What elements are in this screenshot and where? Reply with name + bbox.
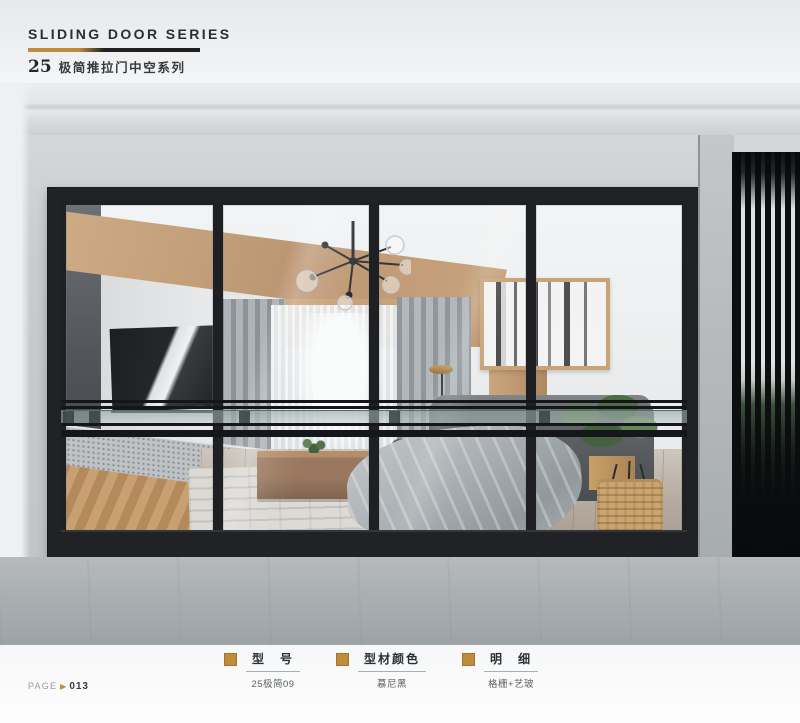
ceiling-molding (0, 83, 800, 135)
spec-details: 明 细 格栅+艺玻 (462, 650, 538, 690)
spec-model-value: 25极简09 (251, 676, 294, 690)
series-title-cn-row: 25 极简推拉门中空系列 (28, 57, 232, 77)
page-header: SLIDING DOOR SERIES 25 极简推拉门中空系列 (28, 26, 232, 77)
door-panel-4 (531, 201, 688, 549)
right-wall-strip (698, 135, 734, 559)
page-label: PAGE (28, 681, 57, 691)
gold-square-icon (462, 653, 475, 666)
door-panels (61, 201, 687, 549)
door-bottom-rail (61, 530, 687, 549)
header-accent-bar (28, 48, 200, 52)
gold-square-icon (336, 653, 349, 666)
spec-model: 型 号 25极简09 (224, 650, 300, 690)
vertical-slat-partition (732, 152, 800, 559)
gold-square-icon (224, 653, 237, 666)
spec-row: 型 号 25极简09 型材颜色 慕尼黑 明 细 格栅+艺玻 (224, 650, 538, 690)
series-title-cn: 极简推拉门中空系列 (59, 57, 186, 76)
spec-details-value: 格栅+艺玻 (488, 676, 534, 690)
page-footer: PAGE ▶ 013 (28, 681, 89, 692)
left-wall-corner (0, 83, 30, 559)
arrow-icon: ▶ (60, 682, 66, 691)
spec-profile-color-value: 慕尼黑 (377, 676, 407, 690)
sliding-door-frame (48, 188, 700, 562)
door-panel-3 (374, 201, 531, 549)
door-panel-2 (218, 201, 375, 549)
catalog-page: SLIDING DOOR SERIES 25 极简推拉门中空系列 (0, 0, 800, 723)
series-title-en: SLIDING DOOR SERIES (28, 26, 232, 42)
series-number: 25 (28, 57, 52, 77)
product-photo (0, 83, 800, 645)
page-number: 013 (69, 681, 89, 692)
spec-details-label: 明 细 (484, 650, 538, 672)
spec-model-label: 型 号 (246, 650, 300, 672)
spec-profile-color: 型材颜色 慕尼黑 (336, 650, 426, 690)
foreground-concrete-floor (0, 557, 800, 645)
door-panel-1 (61, 201, 218, 549)
spec-profile-color-label: 型材颜色 (358, 650, 426, 672)
